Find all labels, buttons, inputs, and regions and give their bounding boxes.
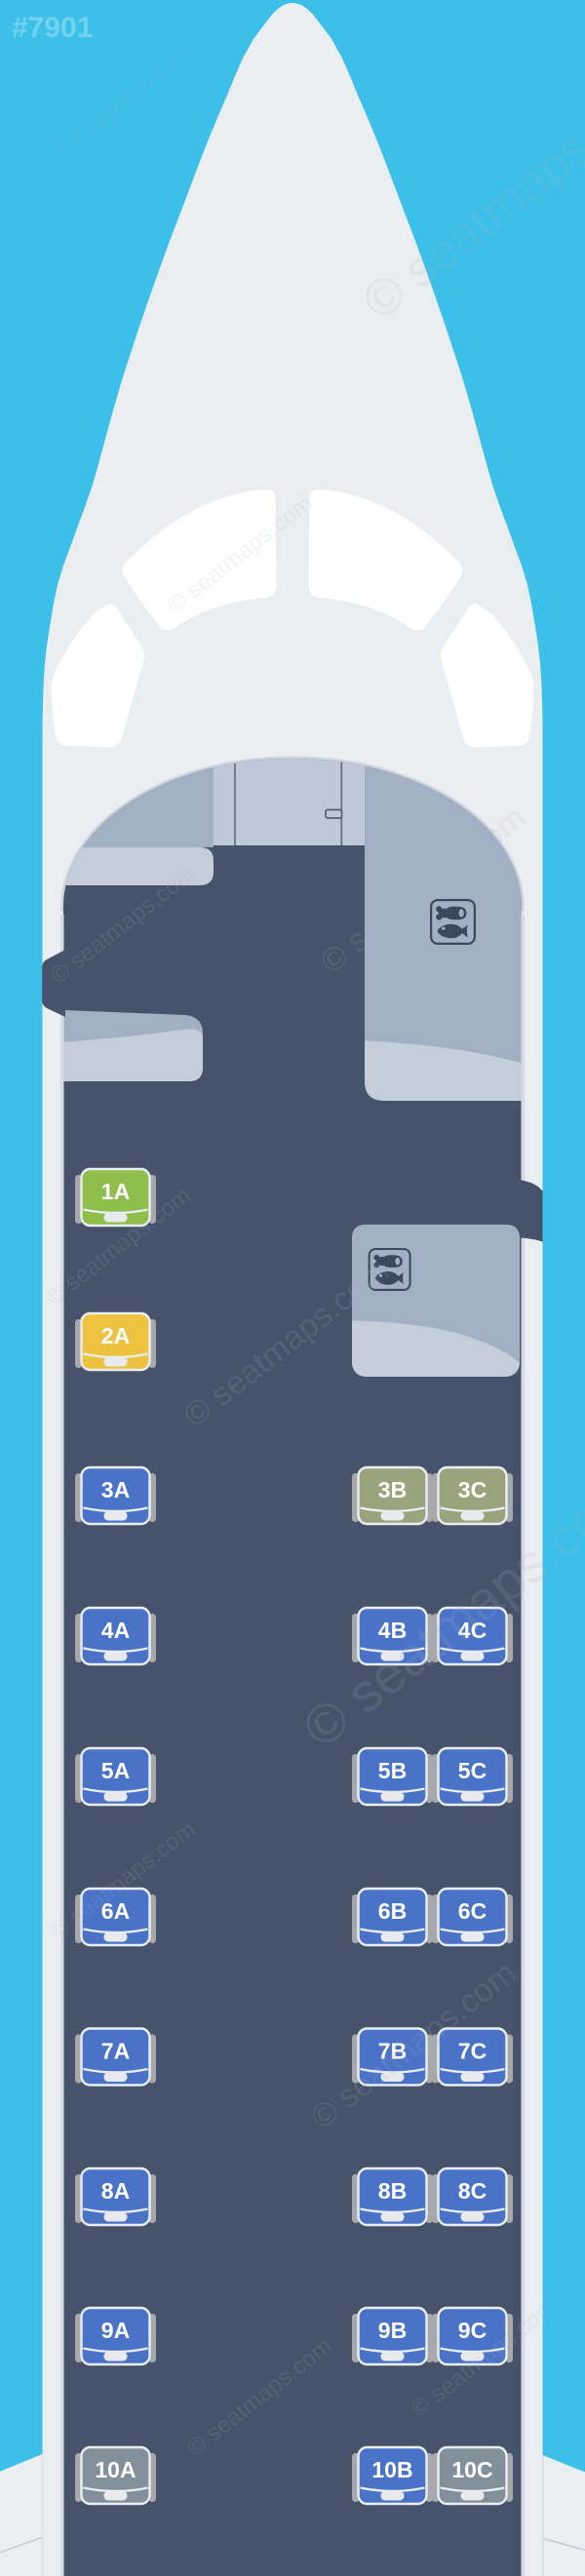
svg-text:3B: 3B	[378, 1477, 407, 1503]
svg-text:8A: 8A	[101, 2178, 130, 2204]
svg-text:5A: 5A	[101, 1758, 130, 1783]
svg-text:3C: 3C	[458, 1477, 487, 1503]
svg-text:9B: 9B	[378, 2318, 407, 2343]
svg-text:6B: 6B	[378, 1898, 407, 1924]
svg-text:10C: 10C	[451, 2457, 492, 2482]
svg-text:4A: 4A	[101, 1618, 130, 1643]
svg-text:2A: 2A	[101, 1323, 130, 1348]
svg-text:7C: 7C	[458, 2039, 487, 2064]
svg-text:1A: 1A	[101, 1179, 130, 1204]
svg-text:8C: 8C	[458, 2178, 487, 2204]
svg-text:6C: 6C	[458, 1898, 487, 1924]
svg-text:7A: 7A	[101, 2039, 130, 2064]
svg-text:#7901: #7901	[12, 12, 93, 44]
svg-text:8B: 8B	[378, 2178, 407, 2204]
svg-text:5C: 5C	[458, 1758, 487, 1783]
svg-text:10A: 10A	[95, 2457, 136, 2482]
svg-text:10B: 10B	[371, 2457, 412, 2482]
svg-text:5B: 5B	[378, 1758, 407, 1783]
svg-text:3A: 3A	[101, 1477, 130, 1503]
svg-text:9C: 9C	[458, 2318, 487, 2343]
svg-text:9A: 9A	[101, 2318, 130, 2343]
